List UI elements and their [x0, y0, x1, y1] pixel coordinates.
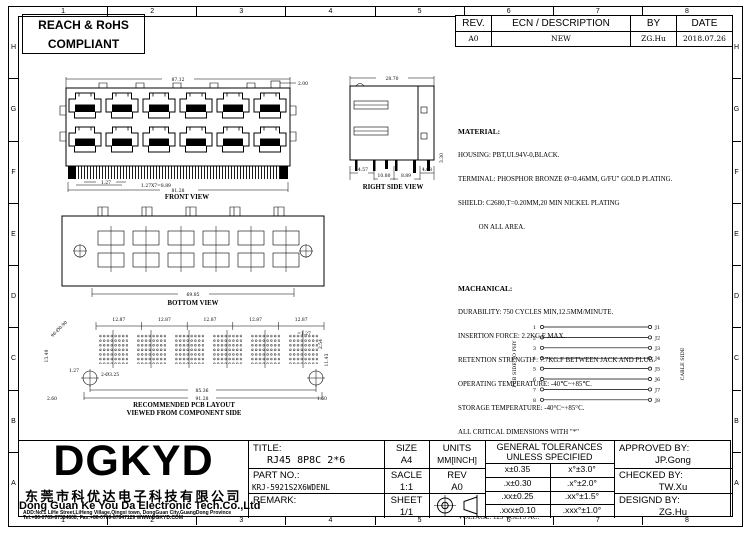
- spec-line: ALL CRITICAL DIMENSIONS WITH "*": [458, 429, 728, 437]
- svg-text:1.27: 1.27: [69, 368, 79, 374]
- front-jacks: [69, 93, 286, 152]
- svg-text:2-Ø3.25: 2-Ø3.25: [101, 371, 119, 378]
- spec-line: RETENTION STRENGTH : 7.7KG.F BETWEEN JAC…: [458, 357, 728, 365]
- by-value: ZG.Hu: [631, 32, 677, 46]
- right-side-view-caption: RIGHT SIDE VIEW: [330, 184, 456, 192]
- title-label: TITLE:: [253, 443, 282, 454]
- svg-text:12.87: 12.87: [204, 317, 217, 323]
- zone-label: F: [9, 142, 18, 204]
- zone-label: C: [732, 328, 741, 390]
- tolerance-cell: x±0.35: [485, 463, 550, 476]
- zone-label: 4: [286, 516, 375, 525]
- spec-line: STORAGE TEMPERATURE: -40°C~+85°C.: [458, 405, 728, 413]
- spec-line: ON ALL AREA.: [458, 224, 728, 232]
- svg-text:12.87: 12.87: [249, 317, 262, 323]
- svg-text:69.85: 69.85: [187, 292, 200, 298]
- right-side-view-drawing: 28.70 4.57 10.80 8.89 4.08 3.30: [330, 70, 456, 182]
- zone-label: C: [9, 328, 18, 390]
- tolerance-cell: .x°±2.0°: [550, 477, 614, 490]
- front-pins: [68, 166, 288, 179]
- svg-text:8.89: 8.89: [401, 173, 411, 179]
- part-no-value: KRJ-5921S2X6WDENL: [252, 482, 330, 493]
- pcb-layout-drawing: 96-Ø0.90 12.87 12.87 12.87 12.87 12.87 =…: [38, 316, 330, 402]
- title-value: RJ45 8P8C 2*6: [267, 455, 345, 466]
- tolerance-cell: .x±0.30: [485, 477, 550, 490]
- material-heading: MATERIAL:: [458, 128, 728, 136]
- bottom-view-caption: BOTTOM VIEW: [56, 300, 330, 308]
- svg-text:1.27X7=8.89: 1.27X7=8.89: [141, 183, 171, 189]
- pcb-dim-bottom: 85.36 91.28: [84, 385, 322, 402]
- tolerance-cell: .xx±0.25: [485, 490, 550, 503]
- designed-by-label: DESIGND BY:: [619, 495, 680, 506]
- pcb-mount-holes: 2-Ø3.25: [81, 369, 325, 387]
- zone-label: F: [732, 142, 741, 204]
- bottom-pin-clusters: [98, 226, 299, 272]
- right-body: [350, 84, 434, 174]
- bottom-body: [62, 207, 324, 286]
- bottom-view-drawing: 69.85: [56, 206, 330, 300]
- spec-line: TERMINAL: PHOSPHOR BRONZE Ø=0.46MM, G/FU…: [458, 176, 728, 184]
- by-col-header: BY: [631, 16, 677, 32]
- checked-by-label: CHECKED BY:: [619, 470, 683, 481]
- zone-label: A: [732, 453, 741, 514]
- size-value: A4: [384, 455, 429, 466]
- spec-line: HOUSING: PBT,UL94V-0,BLACK.: [458, 152, 728, 160]
- revision-table: REV. ECN / DESCRIPTION BY DATE A0 NEW ZG…: [455, 15, 733, 47]
- svg-text:4.08: 4.08: [422, 167, 432, 173]
- svg-text:11.43: 11.43: [324, 353, 330, 366]
- rev-label: REV: [429, 470, 485, 481]
- compliance-box: REACH & RoHS COMPLIANT: [22, 14, 145, 54]
- pcb-hole-dia-label: 96-Ø0.90: [49, 319, 69, 339]
- zone-label: H: [9, 17, 18, 79]
- company-logo: DGKYD: [19, 437, 248, 485]
- units-label: UNITS: [429, 443, 485, 454]
- zone-label: B: [732, 391, 741, 453]
- svg-text:10.80: 10.80: [378, 173, 391, 179]
- company-contact: Tel:+86-0769-87334808; Fax:+86-0769-8784…: [23, 515, 246, 521]
- zone-strip-right: H G F E D C B A: [732, 17, 741, 514]
- front-dim-tab: 2.00: [298, 81, 308, 87]
- part-no-label: PART NO.:: [253, 470, 299, 481]
- compliance-line2: COMPLIANT: [23, 35, 144, 54]
- zone-label: G: [732, 79, 741, 141]
- svg-text:28.70: 28.70: [386, 76, 399, 82]
- mechanical-heading: MACHANICAL:: [458, 285, 728, 293]
- svg-text:12.87: 12.87: [112, 317, 125, 323]
- projection-symbol-icon: [431, 494, 483, 517]
- drawing-sheet: 1 2 3 4 5 6 7 8 1 2 3 4 5 6 7 8 H G F E …: [0, 0, 750, 533]
- front-view-caption: FRONT VIEW: [56, 194, 318, 202]
- tolerance-cell: .xxx±0.10: [485, 504, 550, 517]
- tolerance-header-line2: UNLESS SPECIFIED: [485, 452, 614, 463]
- zone-label: D: [732, 266, 741, 328]
- tolerance-cell: x°±3.0°: [550, 463, 614, 476]
- mechanical-section: MACHANICAL: DURABILITY: 750 CYCLES MIN,1…: [458, 269, 728, 453]
- rev-value: A0: [429, 482, 485, 493]
- svg-text:13.49: 13.49: [44, 349, 50, 362]
- tolerance-cell: .xxx°±1.0°: [550, 504, 614, 517]
- zone-label: E: [732, 204, 741, 266]
- bottom-dim-span: 69.85: [92, 288, 294, 298]
- pcb-layout-caption: RECOMMENDED PCB LAYOUT VIEWED FROM COMPO…: [38, 402, 330, 418]
- svg-text:87.12: 87.12: [172, 77, 185, 83]
- rev-value: A0: [456, 32, 492, 46]
- zone-label: A: [9, 453, 18, 514]
- zone-label: D: [9, 266, 18, 328]
- remark-label: REMARK:: [253, 495, 296, 506]
- date-col-header: DATE: [677, 16, 732, 32]
- size-label: SIZE: [384, 443, 429, 454]
- zone-label: G: [9, 79, 18, 141]
- desc-col-header: ECN / DESCRIPTION: [492, 16, 631, 32]
- svg-text:12.87: 12.87: [295, 317, 308, 323]
- svg-text:2.54: 2.54: [318, 339, 324, 349]
- zone-label: E: [9, 204, 18, 266]
- zone-label: H: [732, 17, 741, 79]
- zone-label: 5: [376, 7, 465, 16]
- checked-by-value: TW.Xu: [614, 482, 732, 493]
- front-view-drawing: 87.12 2.00 1.27 1.27X7=8.89 81.28: [56, 70, 318, 194]
- pcb-hole-groups: [98, 330, 318, 368]
- spec-line: SHIELD: C2680,T=0.20MM,20 MIN NICKEL PLA…: [458, 200, 728, 208]
- approved-by-label: APPROVED BY:: [619, 443, 689, 454]
- front-dim-bottom: 1.27 1.27X7=8.89 81.28: [68, 180, 288, 194]
- approved-by-value: JP.Gong: [614, 455, 732, 466]
- svg-text:4.57: 4.57: [358, 167, 368, 173]
- designed-by-value: ZG.Hu: [614, 507, 732, 518]
- zone-label: 4: [286, 7, 375, 16]
- units-value: MM[INCH]: [429, 455, 485, 466]
- scale-value: 1:1: [384, 482, 429, 493]
- sheet-value: 1/1: [384, 507, 429, 518]
- zone-label: 3: [197, 7, 286, 16]
- svg-text:12.87: 12.87: [158, 317, 171, 323]
- zone-strip-left: H G F E D C B A: [9, 17, 18, 514]
- pcb-layout-caption-line1: RECOMMENDED PCB LAYOUT: [38, 402, 330, 410]
- rev-col-header: REV.: [456, 16, 492, 32]
- zone-label: B: [9, 391, 18, 453]
- material-section: MATERIAL: HOUSING: PBT,UL94V-0,BLACK. TE…: [458, 112, 728, 248]
- pcb-layout-caption-line2: VIEWED FROM COMPONENT SIDE: [38, 410, 330, 418]
- tolerance-cell: .xx°±1.5°: [550, 490, 614, 503]
- title-block: DGKYD 东莞市科优达电子科技有限公司 Dong Guan Ke You Da…: [18, 440, 731, 517]
- spec-line: INSERTION FORCE: 2.2KG.F MAX.: [458, 333, 728, 341]
- spec-line: DURABILITY: 750 CYCLES MIN,12.5MM/MINUTE…: [458, 309, 728, 317]
- svg-text:3.30: 3.30: [439, 153, 445, 163]
- date-value: 2018.07.26: [677, 32, 732, 46]
- front-dim-width: 87.12: [66, 77, 290, 88]
- compliance-line1: REACH & RoHS: [23, 16, 144, 35]
- svg-text:85.36: 85.36: [196, 388, 209, 394]
- sheet-label: SHEET: [384, 495, 429, 506]
- spec-line: OPERATING TEMPERATURE: -40℃~+85℃.: [458, 381, 728, 389]
- scale-label: SACLE: [384, 470, 429, 481]
- desc-value: NEW: [492, 32, 631, 46]
